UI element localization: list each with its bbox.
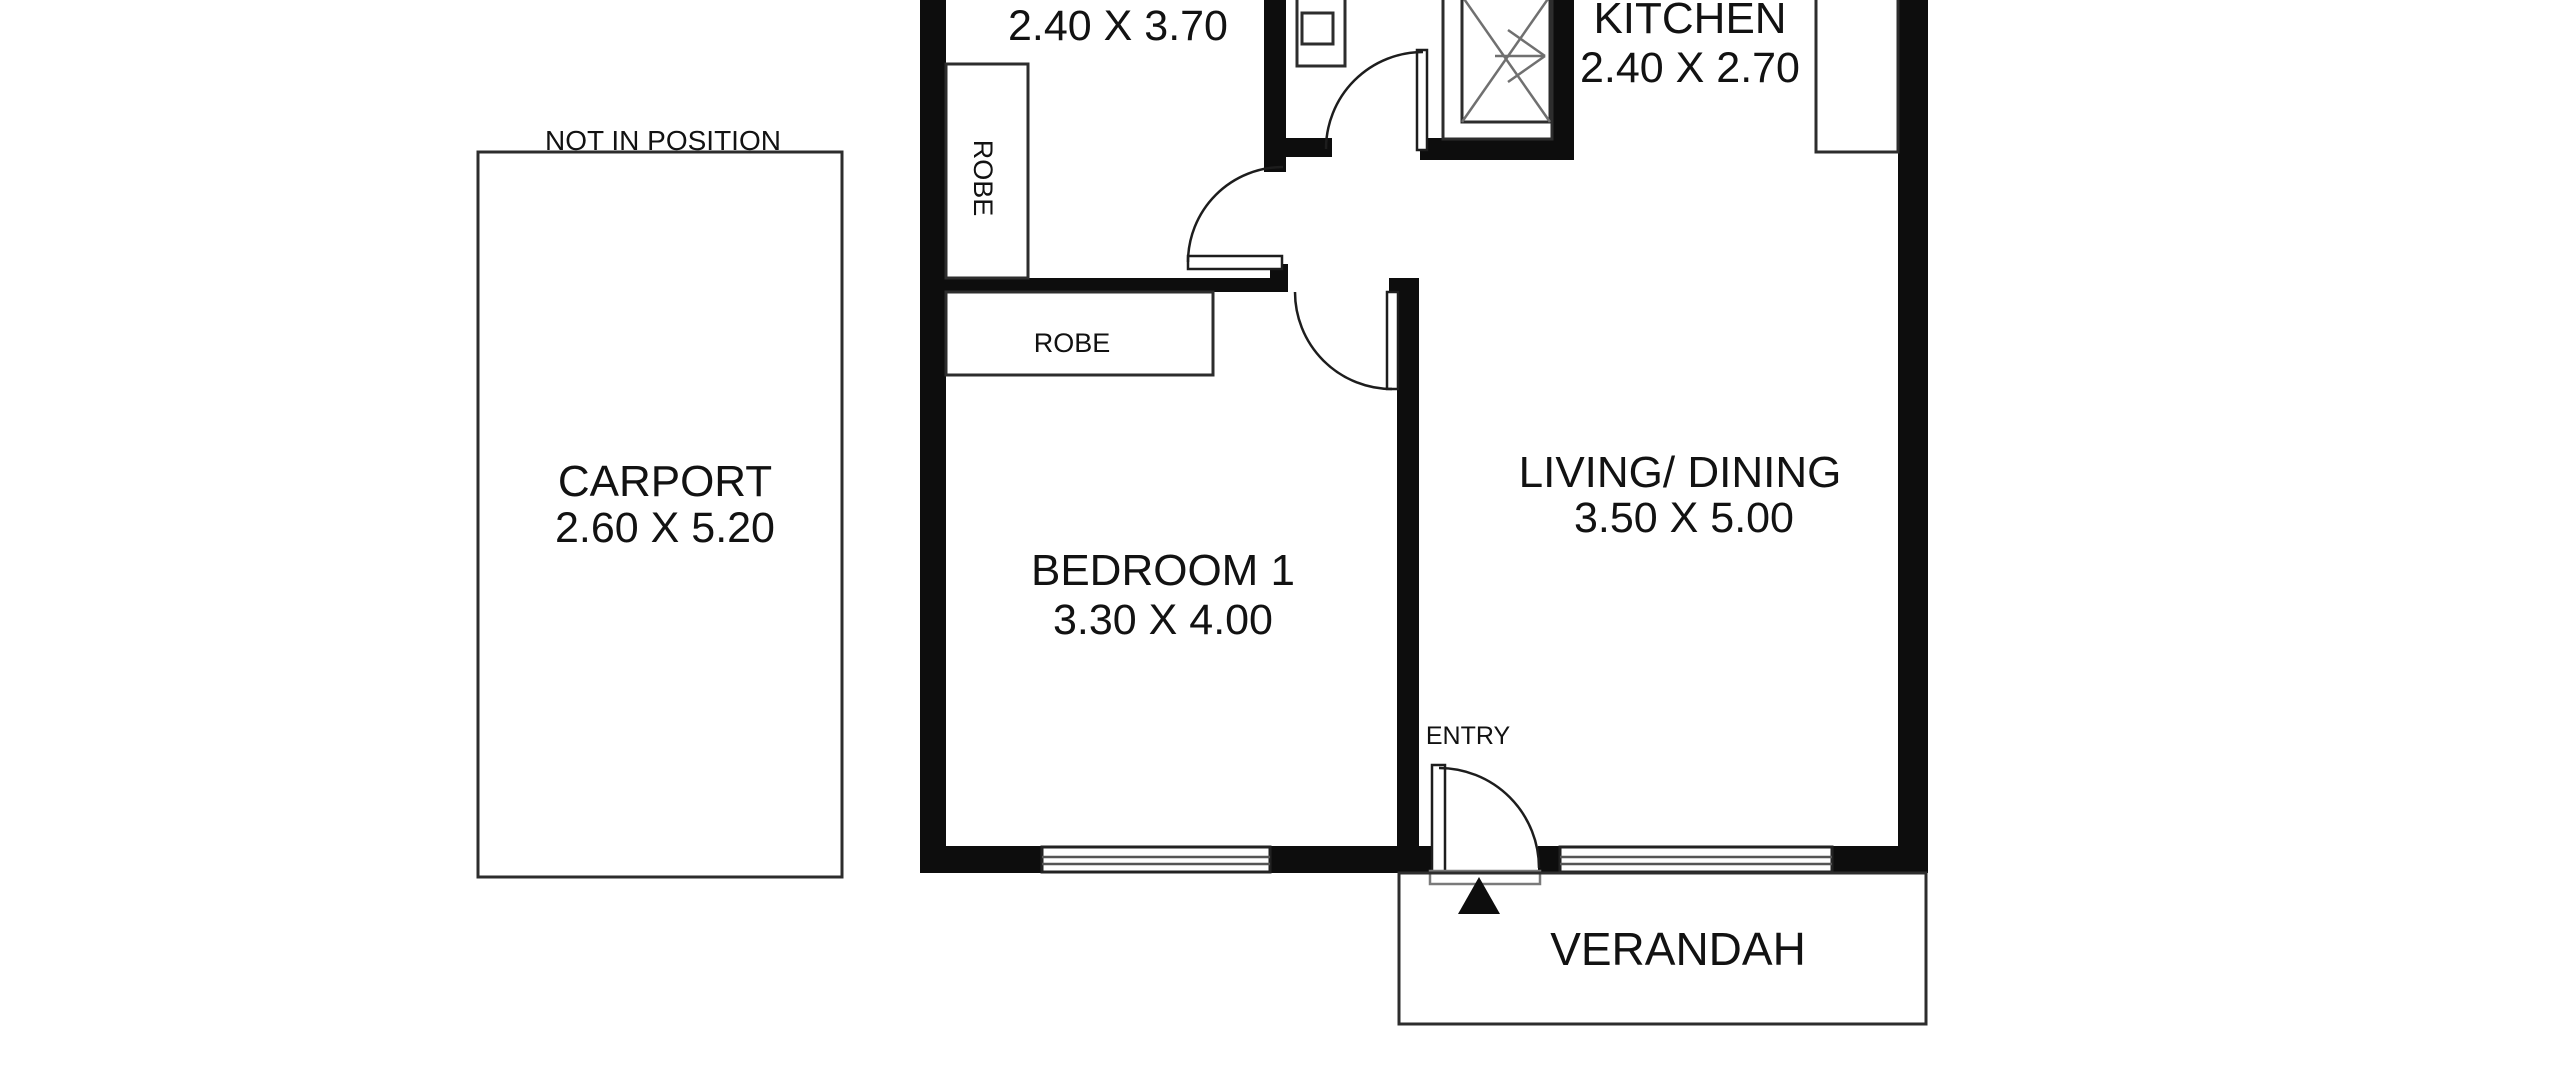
- bedroom1-door-leaf: [1387, 292, 1398, 389]
- floorplan-drawing: NOT IN POSITION CARPORT 2.60 X 5.20: [0, 0, 2560, 1075]
- window-bedroom1: [1042, 847, 1270, 872]
- verandah-name-label: VERANDAH: [1550, 923, 1806, 975]
- toilet-pan: [1302, 13, 1333, 44]
- wall-outer-right: [1898, 0, 1928, 873]
- living-dining-dims-label: 3.50 X 5.00: [1574, 494, 1794, 542]
- wall-bathroom-bottom: [1420, 138, 1574, 160]
- bedroom1-dims-label: 3.30 X 4.00: [1053, 596, 1273, 644]
- kitchen-name-label: KITCHEN: [1593, 0, 1786, 43]
- bedroom2-door-swing-arc: [1188, 167, 1283, 262]
- robe-bedroom2-label: ROBE: [968, 140, 998, 217]
- window-bedroom1-frame: [1042, 847, 1270, 872]
- wall-bedroom-divider: [946, 278, 1280, 292]
- doors: [1188, 50, 1540, 914]
- bathroom-door-leaf: [1417, 50, 1427, 150]
- toilet-cistern: [1297, 0, 1345, 66]
- floorplan-page: NOT IN POSITION CARPORT 2.60 X 5.20: [0, 0, 2560, 1075]
- wall-outer-left: [920, 0, 946, 873]
- entry-door-swing-arc: [1439, 768, 1539, 868]
- wall-living-left-jamb: [1389, 278, 1419, 292]
- wall-bottom-segment-4: [1832, 846, 1928, 873]
- robes: ROBE ROBE: [946, 64, 1213, 375]
- wall-bedroom2-right: [1264, 0, 1286, 172]
- wall-bottom-segment-1: [920, 846, 1042, 873]
- kitchen-dims-label: 2.40 X 2.70: [1580, 44, 1800, 92]
- wall-bottom-segment-3: [1538, 846, 1560, 873]
- window-living: [1560, 847, 1832, 872]
- kitchen-bench: [1816, 0, 1898, 152]
- carport: NOT IN POSITION CARPORT 2.60 X 5.20: [478, 125, 842, 877]
- carport-name-label: CARPORT: [558, 457, 772, 506]
- shower-arrow-line-1: [1508, 30, 1545, 56]
- bedroom2-dims-label: 2.40 X 3.70: [1008, 2, 1228, 50]
- bedroom1-door-swing-arc: [1295, 292, 1392, 389]
- bedroom2-door-leaf: [1188, 256, 1282, 269]
- robe-bedroom1-label: ROBE: [1034, 328, 1111, 358]
- carport-note-label: NOT IN POSITION: [545, 125, 781, 156]
- entry-door-leaf: [1432, 765, 1445, 872]
- entry-label: ENTRY: [1426, 722, 1511, 750]
- carport-dims-label: 2.60 X 5.20: [555, 504, 775, 552]
- wall-living-left: [1397, 278, 1419, 873]
- bedroom1-name-label: BEDROOM 1: [1031, 546, 1295, 595]
- wall-laundry-right: [1552, 0, 1574, 160]
- window-living-frame: [1560, 847, 1832, 872]
- living-dining-name-label: LIVING/ DINING: [1519, 448, 1842, 497]
